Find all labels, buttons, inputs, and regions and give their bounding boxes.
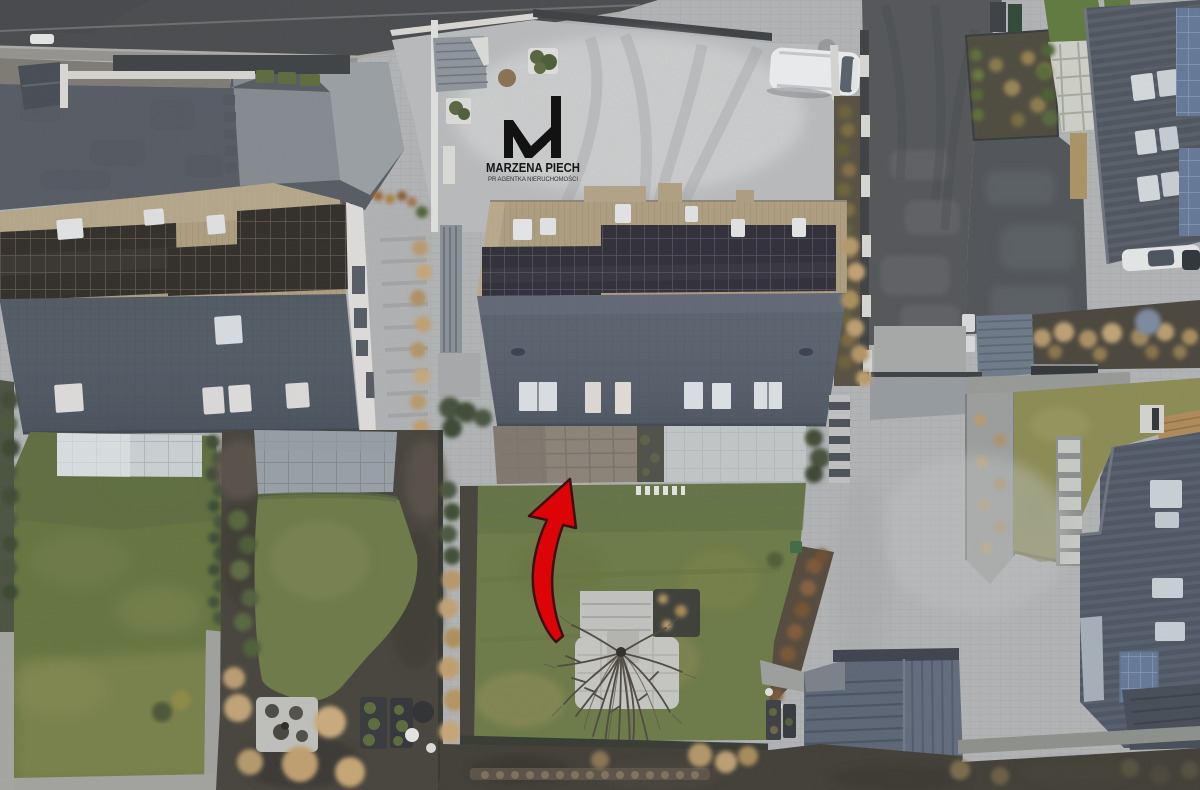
svg-text:PR AGENTKA NIERUCHOMOŚCI: PR AGENTKA NIERUCHOMOŚCI [488,175,578,183]
svg-text:MARZENA PIECH: MARZENA PIECH [486,161,580,175]
